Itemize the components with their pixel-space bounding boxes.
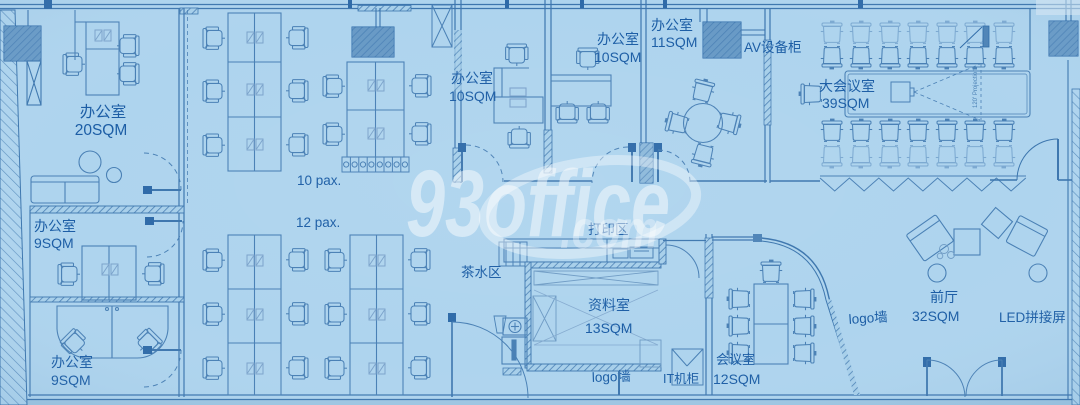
svg-text:.com: .com	[560, 200, 658, 260]
